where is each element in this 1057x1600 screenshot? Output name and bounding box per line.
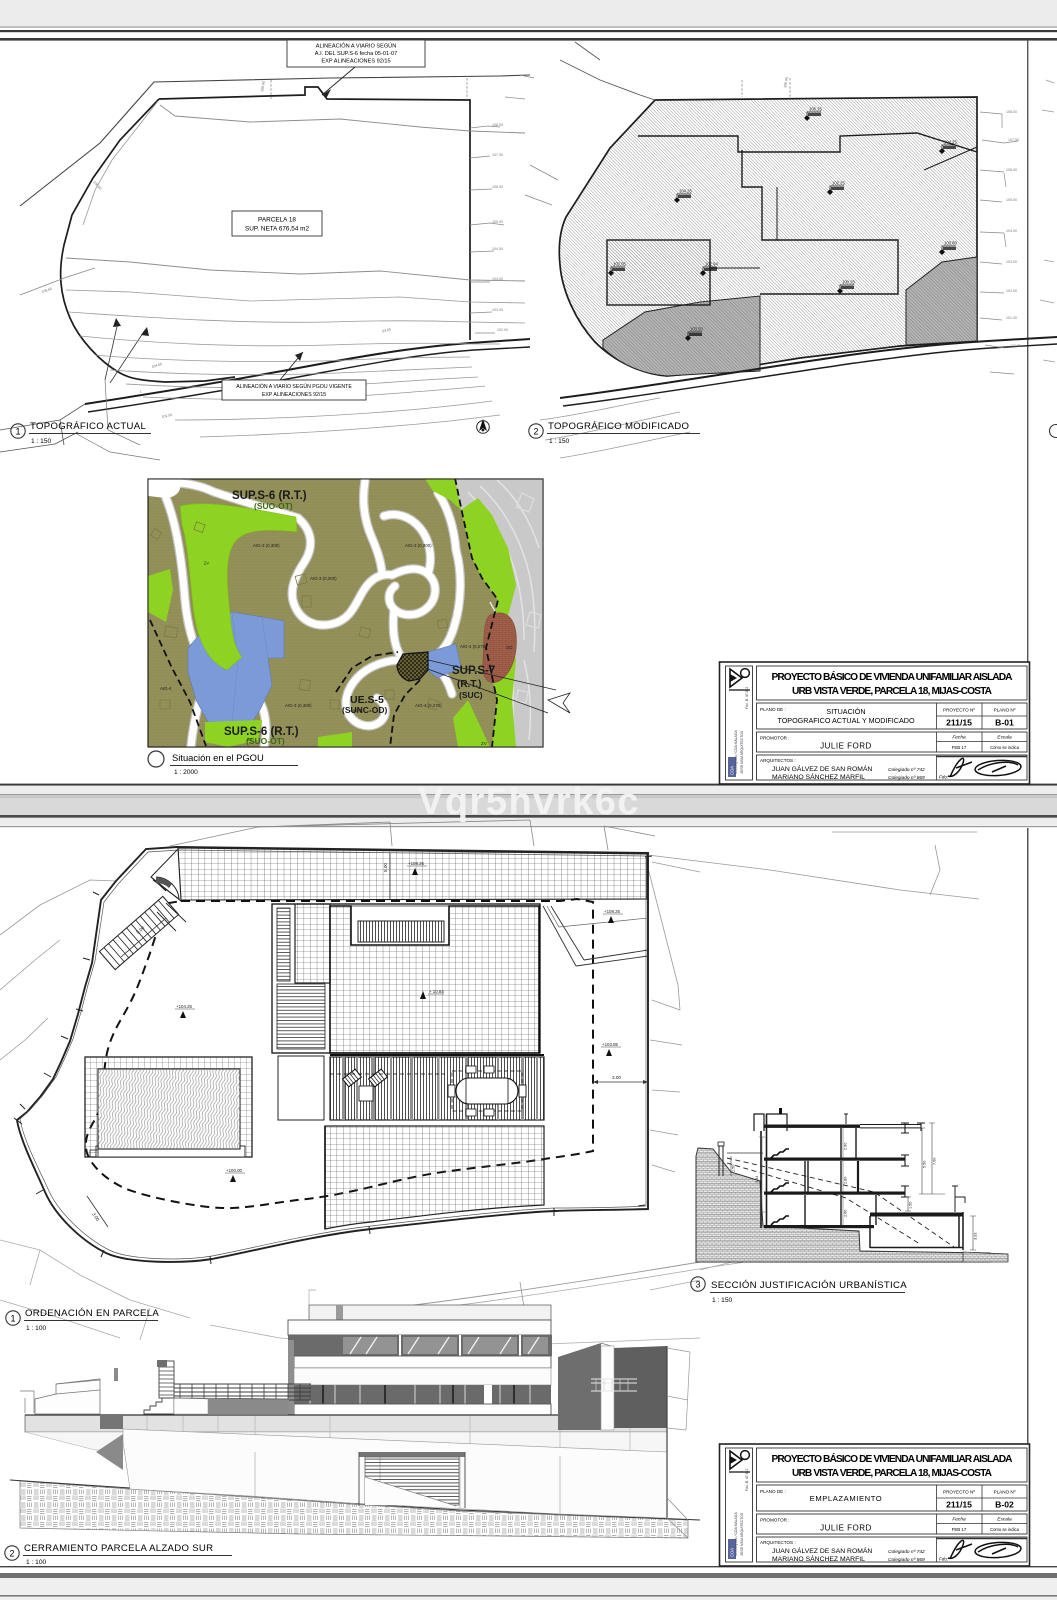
svg-text:JGSR MSM ARQUITECTOS: JGSR MSM ARQUITECTOS	[740, 730, 744, 774]
svg-text:PLANO Nº: PLANO Nº	[994, 708, 1016, 713]
svg-text:AIG-4: AIG-4	[160, 686, 172, 691]
svg-text:Fecha: Fecha	[952, 735, 966, 741]
svg-text:108.00: 108.00	[1006, 110, 1017, 114]
svg-text:JGSR MSM ARQUITECTOS: JGSR MSM ARQUITECTOS	[740, 1512, 744, 1556]
svg-text:JULIE FORD: JULIE FORD	[820, 1524, 872, 1533]
svg-text:B-01: B-01	[995, 718, 1014, 728]
svg-text:PROMOTOR :: PROMOTOR :	[760, 1518, 790, 1523]
svg-text:Vqr5hvrk6c: Vqr5hvrk6c	[418, 781, 640, 823]
svg-text:Escala: Escala	[997, 735, 1012, 741]
svg-text:2.60: 2.60	[844, 1143, 848, 1150]
svg-text:108.00: 108.00	[492, 123, 503, 127]
svg-text:(SUC): (SUC)	[459, 690, 483, 700]
svg-text:EMPLAZAMIENTO: EMPLAZAMIENTO	[810, 1494, 883, 1503]
svg-text:1 : 150: 1 : 150	[549, 438, 569, 445]
svg-text:URB VISTA VERDE, PARCELA 18, M: URB VISTA VERDE, PARCELA 18, MIJAS-COSTA	[792, 686, 993, 697]
svg-text:EXP ALINEACIONES 92/15: EXP ALINEACIONES 92/15	[321, 59, 390, 65]
svg-text:104.25: 104.25	[944, 140, 957, 145]
svg-text:TOPOGRAFICO ACTUAL Y MODIFICAD: TOPOGRAFICO ACTUAL Y MODIFICADO	[777, 716, 915, 725]
svg-text:1 : 100: 1 : 100	[26, 1559, 46, 1566]
svg-text:ZV: ZV	[481, 741, 488, 746]
svg-text:Colegiado nº 742: Colegiado nº 742	[888, 767, 925, 773]
svg-text:(SUNC-OD): (SUNC-OD)	[342, 705, 387, 715]
svg-text:4.34: 4.34	[755, 1176, 759, 1183]
svg-text:SITUACIÓN: SITUACIÓN	[826, 707, 865, 716]
svg-text:PROMOTOR :: PROMOTOR :	[760, 736, 790, 741]
svg-text:103.00: 103.00	[1006, 260, 1017, 264]
svg-text:102.00: 102.00	[497, 328, 508, 332]
svg-text:Colegiado nº 869: Colegiado nº 869	[888, 1557, 925, 1563]
svg-text:SECCIÓN JUSTIFICACIÓN URBANÍST: SECCIÓN JUSTIFICACIÓN URBANÍSTICA	[711, 1280, 907, 1291]
svg-text:Escala: Escala	[997, 1517, 1012, 1523]
svg-text:+103.85: +103.85	[602, 1042, 619, 1047]
svg-text:2: 2	[533, 427, 538, 437]
svg-text:AIG-3 (0,300): AIG-3 (0,300)	[310, 576, 337, 581]
svg-text:1 : 100: 1 : 100	[26, 1325, 46, 1332]
svg-text:TOPOGRÁFICO MODIFICADO: TOPOGRÁFICO MODIFICADO	[548, 421, 689, 432]
svg-text:2.80: 2.80	[844, 1177, 848, 1184]
svg-text:PROYECTO BÁSICO DE VIVIENDA UN: PROYECTO BÁSICO DE VIVIENDA UNIFAMILIAR …	[772, 670, 1014, 683]
svg-text:105.00: 105.00	[492, 220, 503, 224]
svg-text:102.25: 102.25	[832, 181, 845, 186]
svg-text:B-02: B-02	[995, 1500, 1014, 1510]
svg-text:103.50: 103.50	[690, 327, 703, 332]
svg-text:ARQUITECTOS :: ARQUITECTOS :	[760, 758, 796, 763]
svg-text:COA: COA	[730, 766, 735, 775]
svg-text:COA: COA	[730, 1548, 735, 1557]
svg-text:100.25: 100.25	[842, 280, 855, 285]
svg-text:7.00: 7.00	[933, 1158, 937, 1165]
svg-text:AIG-3 (0,300): AIG-3 (0,300)	[405, 543, 432, 548]
svg-text:+108.25: +108.25	[604, 909, 621, 914]
svg-text:PROYECTO Nº: PROYECTO Nº	[943, 1490, 975, 1495]
svg-text:Fdo. B. 47.812: Fdo. B. 47.812	[745, 687, 749, 709]
svg-text:JULIE FORD: JULIE FORD	[820, 742, 872, 751]
svg-text:+108.25: +108.25	[408, 861, 425, 866]
svg-text:3.33: 3.33	[974, 1233, 978, 1240]
svg-text:PROYECTO BÁSICO DE VIVIENDA UN: PROYECTO BÁSICO DE VIVIENDA UNIFAMILIAR …	[772, 1452, 1014, 1465]
svg-text:PLANO Nº: PLANO Nº	[994, 1490, 1016, 1495]
svg-text:Fdo. B. 47.812: Fdo. B. 47.812	[745, 1469, 749, 1491]
svg-text:105.00: 105.00	[1006, 198, 1017, 202]
svg-text:ALINEACIÓN A VIARIO SEGÚN PGOU: ALINEACIÓN A VIARIO SEGÚN PGOU VIGENTE	[236, 383, 352, 390]
svg-text:211/15: 211/15	[946, 718, 972, 728]
svg-text:EXP ALINEACIONES 92/15: EXP ALINEACIONES 92/15	[262, 392, 326, 398]
svg-text:106.00: 106.00	[492, 185, 503, 189]
svg-text:AIG-4 (0,270): AIG-4 (0,270)	[415, 703, 442, 708]
svg-text:AIG-3 (0,300): AIG-3 (0,300)	[285, 703, 312, 708]
svg-text:Como se indica: Como se indica	[990, 745, 1020, 750]
svg-text:OD: OD	[506, 645, 513, 650]
svg-text:106.25: 106.25	[809, 107, 822, 112]
svg-text:211/15: 211/15	[946, 1500, 972, 1510]
svg-text:1: 1	[15, 427, 20, 437]
svg-text:+ 10.84: + 10.84	[429, 989, 444, 994]
svg-text:101.40: 101.40	[1006, 316, 1017, 320]
svg-text:ORDENACIÓN EN PARCELA: ORDENACIÓN EN PARCELA	[25, 1308, 159, 1319]
svg-text:Situación en el PGOU: Situación en el PGOU	[172, 752, 264, 763]
svg-text:2.60: 2.60	[844, 1210, 848, 1217]
svg-text:Fecha: Fecha	[952, 1517, 966, 1523]
svg-text:Fdo:: Fdo:	[939, 1557, 949, 1562]
svg-text:1.50: 1.50	[732, 1165, 736, 1172]
svg-text:1: 1	[10, 1314, 15, 1324]
svg-text:ARQUITECTOS :: ARQUITECTOS :	[760, 1540, 796, 1545]
svg-text:URB VISTA VERDE, PARCELA 18, M: URB VISTA VERDE, PARCELA 18, MIJAS-COSTA	[792, 1468, 993, 1479]
svg-text:5.50: 5.50	[923, 1161, 927, 1168]
svg-text:AIG-3 (0,300): AIG-3 (0,300)	[253, 543, 280, 548]
svg-text:Fdo:: Fdo:	[939, 775, 949, 780]
svg-text:100.50: 100.50	[1010, 344, 1021, 348]
svg-text:2: 2	[9, 1549, 14, 1559]
svg-text:+100.00: +100.00	[226, 1168, 243, 1173]
svg-text:102.05: 102.05	[613, 262, 626, 267]
svg-text:Como se indica: Como se indica	[990, 1527, 1020, 1532]
svg-text:PLANO DE :: PLANO DE :	[760, 1489, 786, 1494]
svg-text:104.00: 104.00	[1006, 229, 1017, 233]
svg-text:1.50: 1.50	[909, 1202, 913, 1209]
svg-text:Colegiado nº 869: Colegiado nº 869	[888, 775, 925, 781]
svg-text:5.00: 5.00	[383, 863, 388, 872]
svg-text:Colegiado nº 742: Colegiado nº 742	[888, 1549, 925, 1555]
svg-text:3: 3	[695, 1280, 700, 1290]
svg-text:103.00: 103.00	[492, 308, 503, 312]
svg-text:104.50: 104.50	[492, 247, 503, 251]
svg-text:ALINEACIÓN A VIARIO SEGÚN: ALINEACIÓN A VIARIO SEGÚN	[316, 43, 397, 50]
svg-text:JUAN GÁLVEZ DE SAN ROMÁN: JUAN GÁLVEZ DE SAN ROMÁN	[772, 1546, 872, 1555]
svg-text:(SUO-OT): (SUO-OT)	[254, 501, 293, 511]
svg-text:SUP. NETA 676,54 m2: SUP. NETA 676,54 m2	[245, 226, 310, 233]
svg-text:102.00: 102.00	[1006, 289, 1017, 293]
svg-text:PLANO DE :: PLANO DE :	[760, 707, 786, 712]
svg-text:1 : 2000: 1 : 2000	[174, 769, 198, 776]
svg-text:107.50: 107.50	[1008, 138, 1019, 142]
svg-text:JUAN GÁLVEZ DE SAN ROMÁN: JUAN GÁLVEZ DE SAN ROMÁN	[772, 764, 872, 773]
svg-text:PARCELA 18: PARCELA 18	[258, 217, 296, 224]
svg-text:107.00: 107.00	[492, 153, 503, 157]
svg-text:AIG-4 (0,270): AIG-4 (0,270)	[460, 644, 487, 649]
svg-text:MARIANO SÁNCHEZ MARFIL: MARIANO SÁNCHEZ MARFIL	[772, 1554, 865, 1563]
svg-text:TOPOGRÁFICO ACTUAL: TOPOGRÁFICO ACTUAL	[30, 421, 146, 432]
svg-text:PROYECTO Nº: PROYECTO Nº	[943, 708, 975, 713]
svg-text:FEB 17: FEB 17	[952, 1527, 967, 1532]
svg-text:102.94: 102.94	[705, 262, 718, 267]
svg-text:103.80: 103.80	[944, 241, 957, 246]
svg-text:3.00: 3.00	[612, 1075, 621, 1080]
svg-text:+104.25: +104.25	[176, 1004, 193, 1009]
svg-text:FEB 17: FEB 17	[952, 745, 967, 750]
svg-text:1 : 150: 1 : 150	[31, 438, 51, 445]
svg-text:CERRAMIENTO PARCELA ALZADO SUR: CERRAMIENTO PARCELA ALZADO SUR	[24, 1543, 213, 1554]
svg-text:1 : 150: 1 : 150	[712, 1297, 732, 1304]
svg-text:104.00: 104.00	[492, 277, 503, 281]
svg-text:ZV: ZV	[247, 737, 253, 742]
svg-text:106.00: 106.00	[1006, 168, 1017, 172]
svg-text:A.I. DEL SUP.S-6 fecha 05-01-0: A.I. DEL SUP.S-6 fecha 05-01-07	[315, 51, 397, 57]
svg-text:104.25: 104.25	[679, 189, 692, 194]
svg-text:MARIANO SÁNCHEZ MARFIL: MARIANO SÁNCHEZ MARFIL	[772, 772, 865, 781]
